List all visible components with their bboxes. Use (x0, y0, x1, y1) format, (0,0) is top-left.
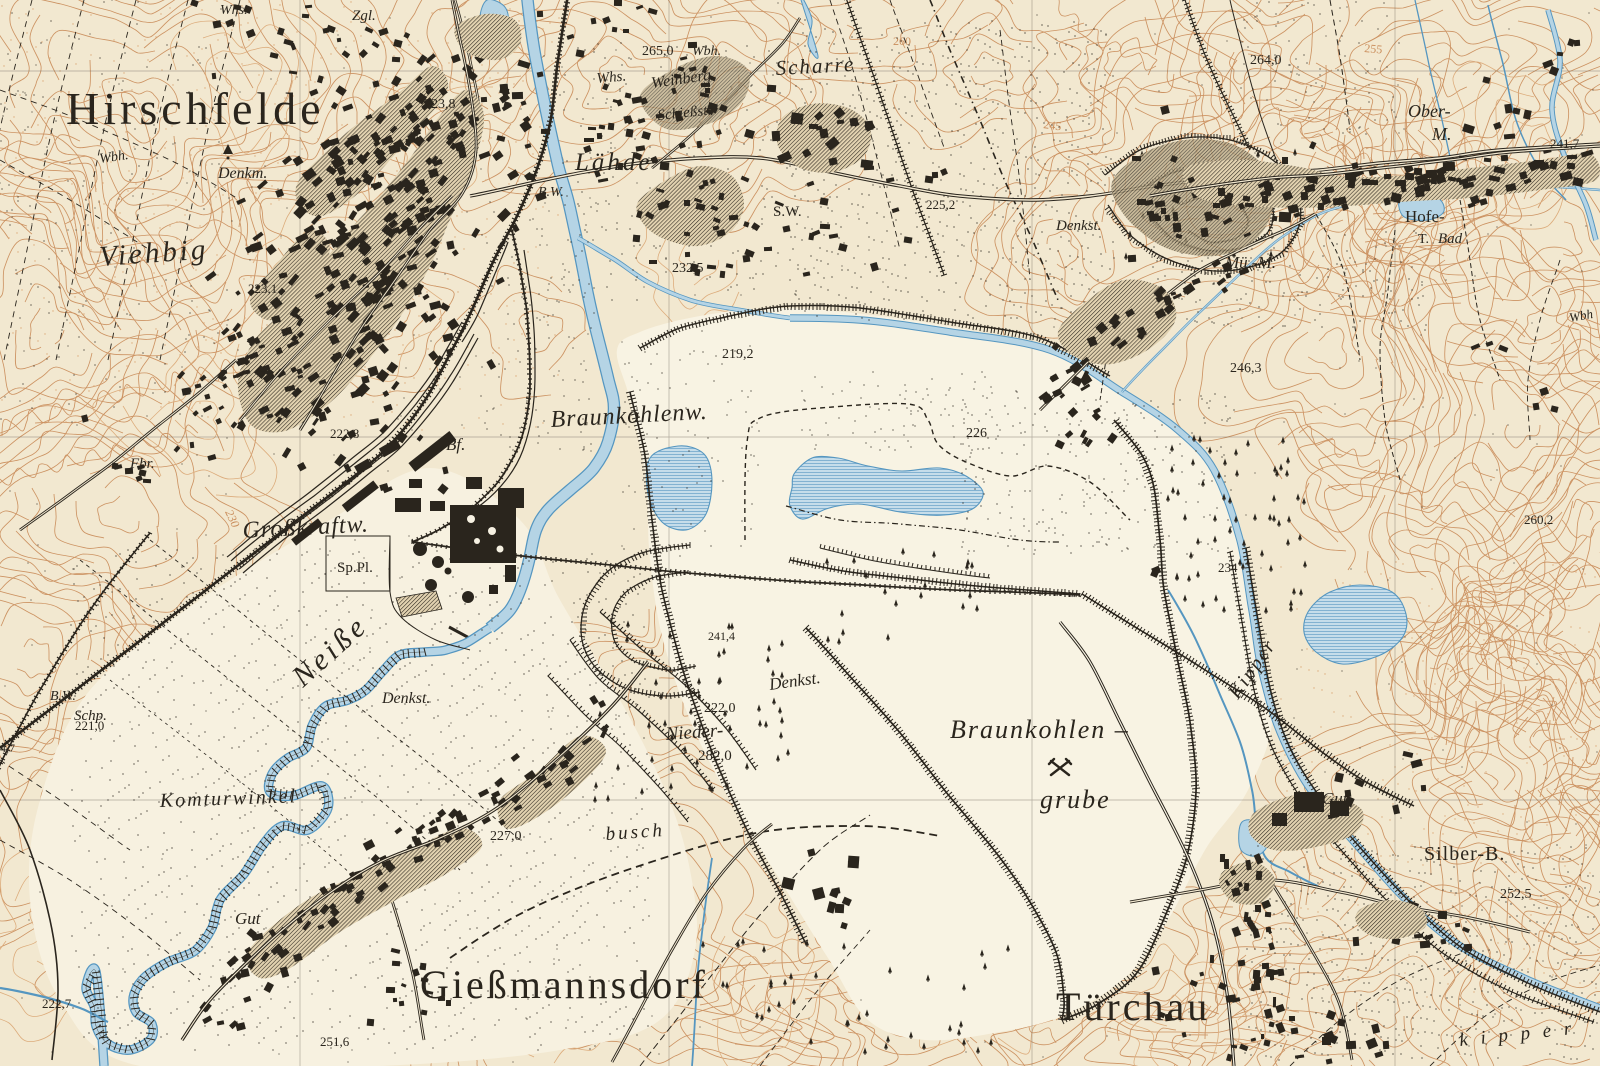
svg-text:234: 234 (1218, 560, 1238, 575)
svg-text:Zgl.: Zgl. (352, 8, 376, 24)
svg-text:222,8: 222,8 (330, 426, 359, 441)
svg-text:252,5: 252,5 (1500, 887, 1532, 902)
svg-text:Whs.: Whs. (220, 3, 248, 18)
svg-text:M.: M. (1431, 124, 1452, 144)
svg-text:221,0: 221,0 (75, 718, 104, 733)
svg-text:260: 260 (893, 34, 911, 48)
svg-text:Türchau: Türchau (1056, 984, 1210, 1029)
svg-text:Denkst.: Denkst. (1055, 218, 1101, 234)
svg-text:Denkst.: Denkst. (381, 690, 430, 707)
svg-text:Braunkohlen –: Braunkohlen – (950, 715, 1130, 744)
svg-text:226: 226 (966, 426, 987, 441)
svg-text:Gut: Gut (235, 909, 262, 928)
svg-text:Scharre: Scharre (775, 52, 856, 80)
svg-text:265,0: 265,0 (642, 44, 674, 59)
svg-text:Silber-B.: Silber-B. (1424, 843, 1505, 865)
svg-text:223,1: 223,1 (248, 281, 277, 296)
svg-text:Denkm.: Denkm. (217, 165, 267, 182)
svg-text:B.W.: B.W. (50, 689, 76, 704)
svg-text:Hirschfelde: Hirschfelde (66, 83, 325, 134)
svg-text:222,0: 222,0 (704, 701, 736, 716)
svg-text:255: 255 (1364, 41, 1383, 57)
svg-text:grube: grube (1040, 785, 1111, 814)
svg-text:Bad: Bad (1438, 231, 1463, 247)
svg-text:Bf.: Bf. (446, 435, 465, 454)
svg-text:T.: T. (1418, 232, 1429, 247)
svg-text:Gießmannsdorf: Gießmannsdorf (420, 962, 708, 1007)
svg-text:282,0: 282,0 (698, 748, 732, 764)
svg-text:219,2: 219,2 (722, 347, 754, 362)
svg-text:251,6: 251,6 (320, 1034, 350, 1049)
svg-text:Hofe-: Hofe- (1405, 207, 1445, 226)
svg-text:Fbr.: Fbr. (129, 456, 155, 472)
svg-text:241,4: 241,4 (708, 629, 735, 643)
svg-text:227,0: 227,0 (490, 829, 522, 844)
svg-text:232,5: 232,5 (672, 261, 704, 276)
svg-text:Nieder-: Nieder- (664, 720, 724, 745)
svg-text:260,2: 260,2 (1524, 512, 1553, 527)
svg-text:B.W.: B.W. (538, 185, 564, 200)
svg-text:Whs.: Whs. (596, 68, 627, 87)
svg-text:S.W.: S.W. (773, 204, 802, 220)
svg-text:Lähde: Lähde (574, 149, 653, 176)
svg-text:Mü.-M.: Mü.-M. (1224, 253, 1276, 272)
svg-text:225,2: 225,2 (926, 197, 955, 212)
svg-text:Ober-: Ober- (1408, 101, 1451, 121)
svg-text:4,7: 4,7 (0, 741, 15, 755)
svg-text:223,8: 223,8 (424, 97, 456, 112)
svg-text:Sp.Pl.: Sp.Pl. (337, 560, 373, 576)
svg-text:Gut: Gut (1322, 789, 1349, 808)
svg-text:241,7: 241,7 (1550, 136, 1580, 151)
svg-text:264,0: 264,0 (1250, 53, 1282, 68)
svg-text:busch: busch (605, 820, 666, 845)
svg-text:246,3: 246,3 (1230, 361, 1262, 376)
svg-text:Wbh.: Wbh. (692, 44, 721, 59)
svg-text:222,7: 222,7 (42, 996, 72, 1011)
